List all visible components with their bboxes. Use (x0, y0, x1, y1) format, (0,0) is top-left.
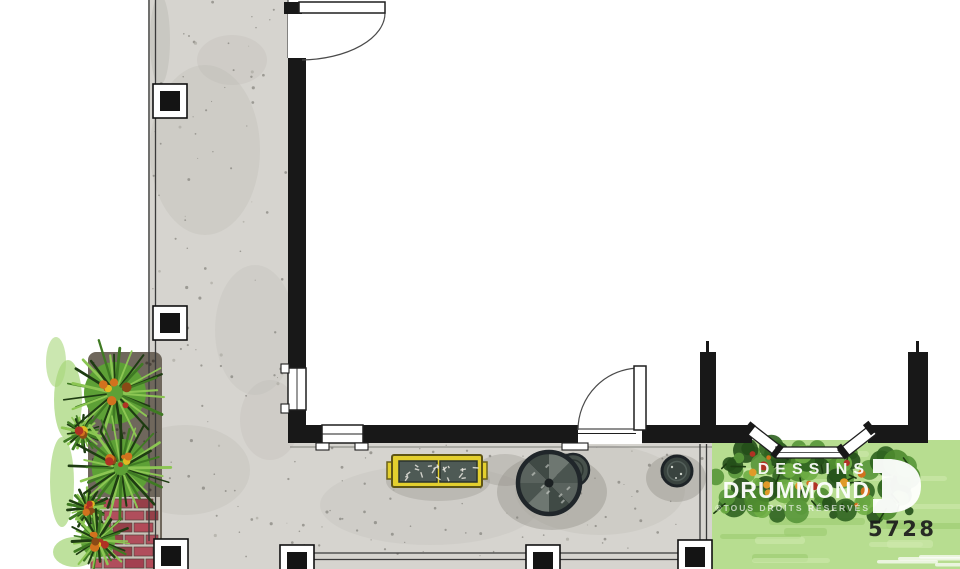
wall-return-right (908, 352, 928, 427)
speckle (636, 490, 639, 493)
speckle (211, 1, 214, 4)
speckle (374, 521, 377, 524)
window-sill (316, 443, 329, 450)
speckle (363, 511, 366, 514)
shrub-spike (130, 467, 171, 468)
speckle (200, 364, 202, 366)
soil-dot (152, 412, 155, 415)
speckle (410, 525, 412, 527)
speckle (266, 211, 269, 214)
speckle (195, 349, 196, 350)
speckle (256, 517, 259, 520)
speckle (180, 348, 182, 350)
speckle (466, 450, 468, 452)
speckle (634, 507, 636, 509)
speckle (175, 238, 177, 240)
speckle (287, 478, 289, 480)
flower (795, 482, 803, 490)
speckle (631, 496, 632, 497)
speckle (204, 267, 207, 270)
speckle (356, 529, 358, 531)
speckle (251, 201, 252, 202)
wall-break-tick (916, 341, 919, 353)
speckle (617, 481, 620, 484)
speckle (220, 365, 222, 367)
railing-post-core (287, 552, 307, 569)
speckle (214, 534, 217, 537)
speckle (210, 282, 213, 285)
speckle (604, 538, 607, 541)
speckle (506, 512, 508, 514)
speckle (321, 526, 323, 528)
speckle (246, 125, 247, 126)
speckle (169, 477, 171, 479)
speckle (670, 501, 672, 503)
speckle (243, 221, 245, 223)
speckle (446, 445, 447, 446)
grass-gap (877, 560, 938, 564)
brick (134, 523, 153, 532)
shrub-flower (123, 402, 129, 408)
speckle (183, 33, 185, 35)
drummond-d-logo (871, 457, 923, 517)
speckle (224, 87, 225, 88)
flower (844, 460, 850, 466)
speckle (302, 524, 305, 527)
speckle (342, 518, 344, 520)
speckle (195, 133, 197, 135)
brick (134, 547, 153, 556)
flower (861, 487, 870, 496)
shrub-flower (118, 462, 123, 467)
speckle (237, 506, 238, 507)
wall-break-tick (706, 341, 709, 353)
brick (146, 511, 158, 520)
leaf-blob (723, 457, 737, 471)
speckle (201, 405, 203, 407)
flower (810, 482, 818, 490)
shrub-spike (72, 540, 93, 541)
speckle (286, 523, 287, 524)
speckle (281, 278, 284, 281)
window-sill (281, 364, 289, 373)
speckle (479, 555, 480, 556)
speckle (239, 531, 241, 533)
speckle (218, 445, 220, 447)
speckle (245, 556, 247, 558)
flower (806, 481, 811, 486)
shrub-flower (87, 501, 93, 507)
speckle (187, 178, 190, 181)
speckle (339, 518, 342, 521)
speckle (273, 9, 275, 11)
railing-post-core (160, 91, 180, 111)
speckle (262, 74, 265, 77)
leaf-blob (719, 489, 736, 506)
speckle (187, 248, 189, 250)
shrub-spike (67, 508, 84, 510)
speckle (187, 344, 189, 346)
speckle (185, 216, 186, 217)
speckle (212, 151, 213, 152)
railing-post-core (685, 547, 705, 567)
plan-number: 5728 (868, 517, 938, 541)
railing-post-core (533, 552, 553, 569)
grass-streak (784, 528, 827, 536)
speckle (198, 297, 201, 300)
speckle (594, 477, 595, 478)
shrub-flower (91, 538, 99, 546)
leaf-blob (784, 499, 809, 524)
speckle (567, 514, 568, 515)
speckle (179, 126, 182, 129)
speckle (342, 480, 343, 481)
flower (750, 451, 756, 457)
speckle (230, 375, 233, 378)
soil-dot (145, 362, 148, 365)
speckle (479, 532, 482, 535)
speckle (461, 503, 462, 504)
plant-pot-right (662, 456, 692, 486)
speckle (274, 331, 276, 333)
planter-soil-left (399, 461, 437, 482)
speckle (187, 475, 190, 478)
wall-return-left (700, 352, 716, 427)
speckle (701, 457, 704, 460)
shrub-flower (75, 426, 84, 435)
railing-post-core (160, 313, 180, 333)
speckle (230, 167, 232, 169)
speckle (250, 518, 253, 521)
grass-gap (919, 555, 960, 559)
house-wall-corner (288, 425, 322, 443)
door-leaf (634, 366, 646, 430)
speckle (522, 456, 523, 457)
speckle (666, 454, 668, 456)
speckle (371, 539, 372, 540)
floor-plan-drawing (0, 0, 960, 569)
speckle (489, 455, 492, 458)
speckle (220, 353, 223, 356)
speckle (225, 490, 227, 492)
house-wall-left (288, 58, 306, 368)
speckle (153, 175, 155, 177)
soil-dot (116, 428, 119, 431)
speckle (248, 46, 249, 47)
shrub-spike (86, 467, 112, 468)
door-leaf (299, 2, 385, 13)
speckle (185, 286, 188, 289)
shrub-flower (105, 457, 113, 465)
window-sill (355, 443, 368, 450)
speckle (516, 516, 518, 518)
speckle (423, 551, 424, 552)
flower (840, 478, 849, 487)
speckle (252, 86, 255, 89)
speckle (158, 195, 160, 197)
shrub-flower (110, 378, 118, 386)
leaf-blob (782, 463, 797, 478)
speckle (341, 466, 344, 469)
speckle (182, 76, 183, 77)
speckle (233, 69, 235, 71)
speckle (251, 101, 254, 104)
speckle (595, 525, 597, 527)
speckle (329, 510, 330, 511)
grass-streak (752, 558, 830, 563)
flower (858, 470, 866, 478)
speckle (543, 534, 545, 536)
shrub-flower (99, 380, 108, 389)
brick (113, 499, 132, 508)
speckle (291, 541, 294, 544)
speckle (160, 143, 162, 145)
speckle (648, 464, 651, 467)
shrub-flower (107, 396, 116, 405)
floor-plan-page: DESSINS DRUMMOND ©TOUS DROITS RÉSERVÉS 5… (0, 0, 960, 569)
brick (125, 511, 144, 520)
speckle (184, 219, 186, 221)
speckle (294, 461, 296, 463)
speckle (197, 158, 198, 159)
speckle (393, 489, 395, 491)
flower (749, 469, 757, 477)
door-sill (562, 443, 588, 450)
speckle (391, 533, 394, 536)
speckle (365, 457, 366, 458)
speckle (205, 109, 207, 111)
speckle (605, 516, 607, 518)
speckle (170, 461, 171, 462)
speckle (152, 288, 153, 289)
leaf-blob (753, 478, 761, 486)
speckle (193, 116, 194, 117)
speckle (656, 531, 659, 534)
speckle (566, 538, 569, 541)
window-sill (281, 404, 289, 413)
brick (125, 559, 144, 568)
door-opening (288, 14, 308, 58)
flower (766, 455, 771, 460)
speckle (623, 484, 624, 485)
speckle (444, 529, 446, 531)
speckle (299, 530, 301, 532)
speckle (369, 451, 372, 454)
shrub-spike (103, 540, 127, 541)
speckle (273, 374, 275, 376)
speckle (675, 524, 676, 525)
shrub-flower (83, 509, 90, 516)
shrub-flower (124, 453, 132, 461)
speckle (240, 250, 242, 252)
house-wall-bottom (363, 425, 578, 443)
speckle (364, 483, 366, 485)
speckle (255, 27, 257, 29)
planter-speck (428, 466, 432, 467)
speckle (269, 19, 270, 20)
speckle (432, 451, 435, 454)
patio-table (518, 452, 580, 514)
speckle (172, 359, 175, 362)
speckle (251, 70, 254, 73)
railing-post-core (161, 546, 181, 566)
shrub-flower (122, 382, 132, 392)
flower (763, 481, 770, 488)
speckle (190, 439, 193, 442)
speckle (158, 270, 161, 273)
flower (854, 503, 858, 507)
speckle (188, 35, 190, 37)
flower (759, 461, 768, 470)
speckle (251, 16, 252, 17)
grass-streak (755, 537, 805, 544)
speckle (325, 510, 328, 513)
speckle (228, 42, 230, 44)
speckle (318, 544, 320, 546)
shrub-flower (101, 541, 109, 549)
soil-dot (123, 432, 126, 435)
speckle (661, 458, 663, 460)
speckle (465, 532, 467, 534)
speckle (434, 507, 437, 510)
speckle (277, 377, 278, 378)
speckle (194, 42, 197, 45)
speckle (389, 498, 391, 500)
speckle (276, 382, 279, 385)
speckle (587, 524, 588, 525)
flower (765, 489, 772, 496)
speckle (384, 548, 386, 550)
table-hub (545, 479, 554, 488)
speckle (234, 490, 236, 492)
speckle (250, 76, 252, 78)
grass-gap (935, 563, 960, 567)
speckle (631, 450, 633, 452)
grass-streak (869, 542, 923, 547)
shrub-spike (120, 477, 121, 519)
speckle (522, 536, 524, 538)
speckle (493, 551, 494, 552)
speckle (216, 515, 218, 517)
speckle (207, 421, 208, 422)
speckle (602, 542, 604, 544)
speckle (627, 547, 628, 548)
speckle (255, 280, 256, 281)
speckle (202, 487, 205, 490)
speckle (270, 522, 273, 525)
leaf-blob (769, 506, 785, 522)
planter-speck (462, 478, 466, 479)
speckle (213, 473, 215, 475)
speckle (245, 395, 247, 397)
speckle (211, 101, 212, 102)
shrub-flower (90, 532, 95, 537)
speckle (284, 171, 287, 174)
speckle (419, 448, 420, 449)
planter-box (387, 455, 487, 487)
speckle (404, 542, 405, 543)
speckle (639, 519, 642, 522)
soil-dot (152, 360, 155, 363)
